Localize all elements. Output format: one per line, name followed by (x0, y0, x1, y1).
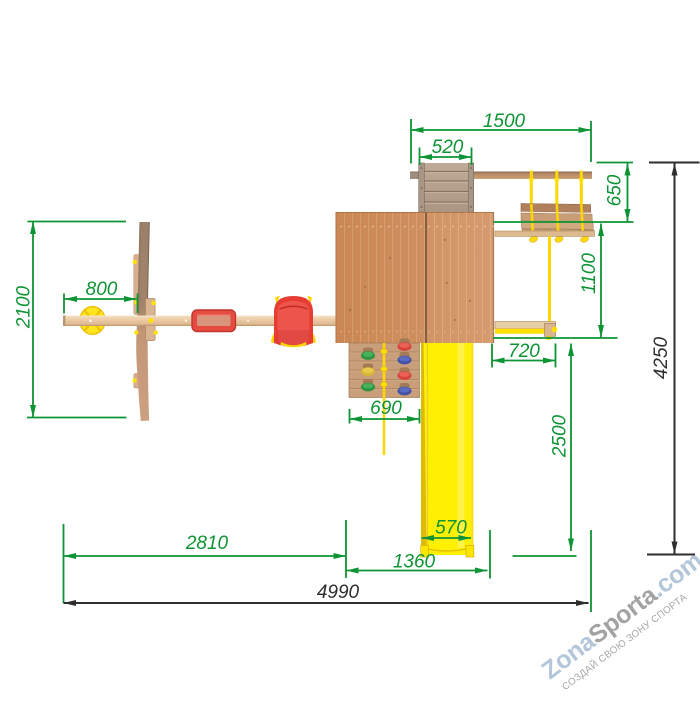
svg-text:520: 520 (432, 137, 464, 158)
svg-text:1500: 1500 (483, 111, 526, 132)
svg-text:2500: 2500 (550, 414, 571, 458)
svg-text:800: 800 (86, 279, 118, 300)
svg-text:4990: 4990 (317, 582, 360, 603)
svg-text:4250: 4250 (651, 336, 672, 379)
svg-text:650: 650 (605, 174, 626, 206)
svg-text:570: 570 (435, 518, 467, 539)
svg-text:720: 720 (508, 341, 540, 362)
svg-text:690: 690 (370, 398, 402, 419)
svg-text:2100: 2100 (14, 285, 35, 329)
svg-text:1360: 1360 (393, 552, 436, 573)
svg-text:2810: 2810 (185, 533, 229, 554)
svg-text:1100: 1100 (579, 253, 600, 294)
